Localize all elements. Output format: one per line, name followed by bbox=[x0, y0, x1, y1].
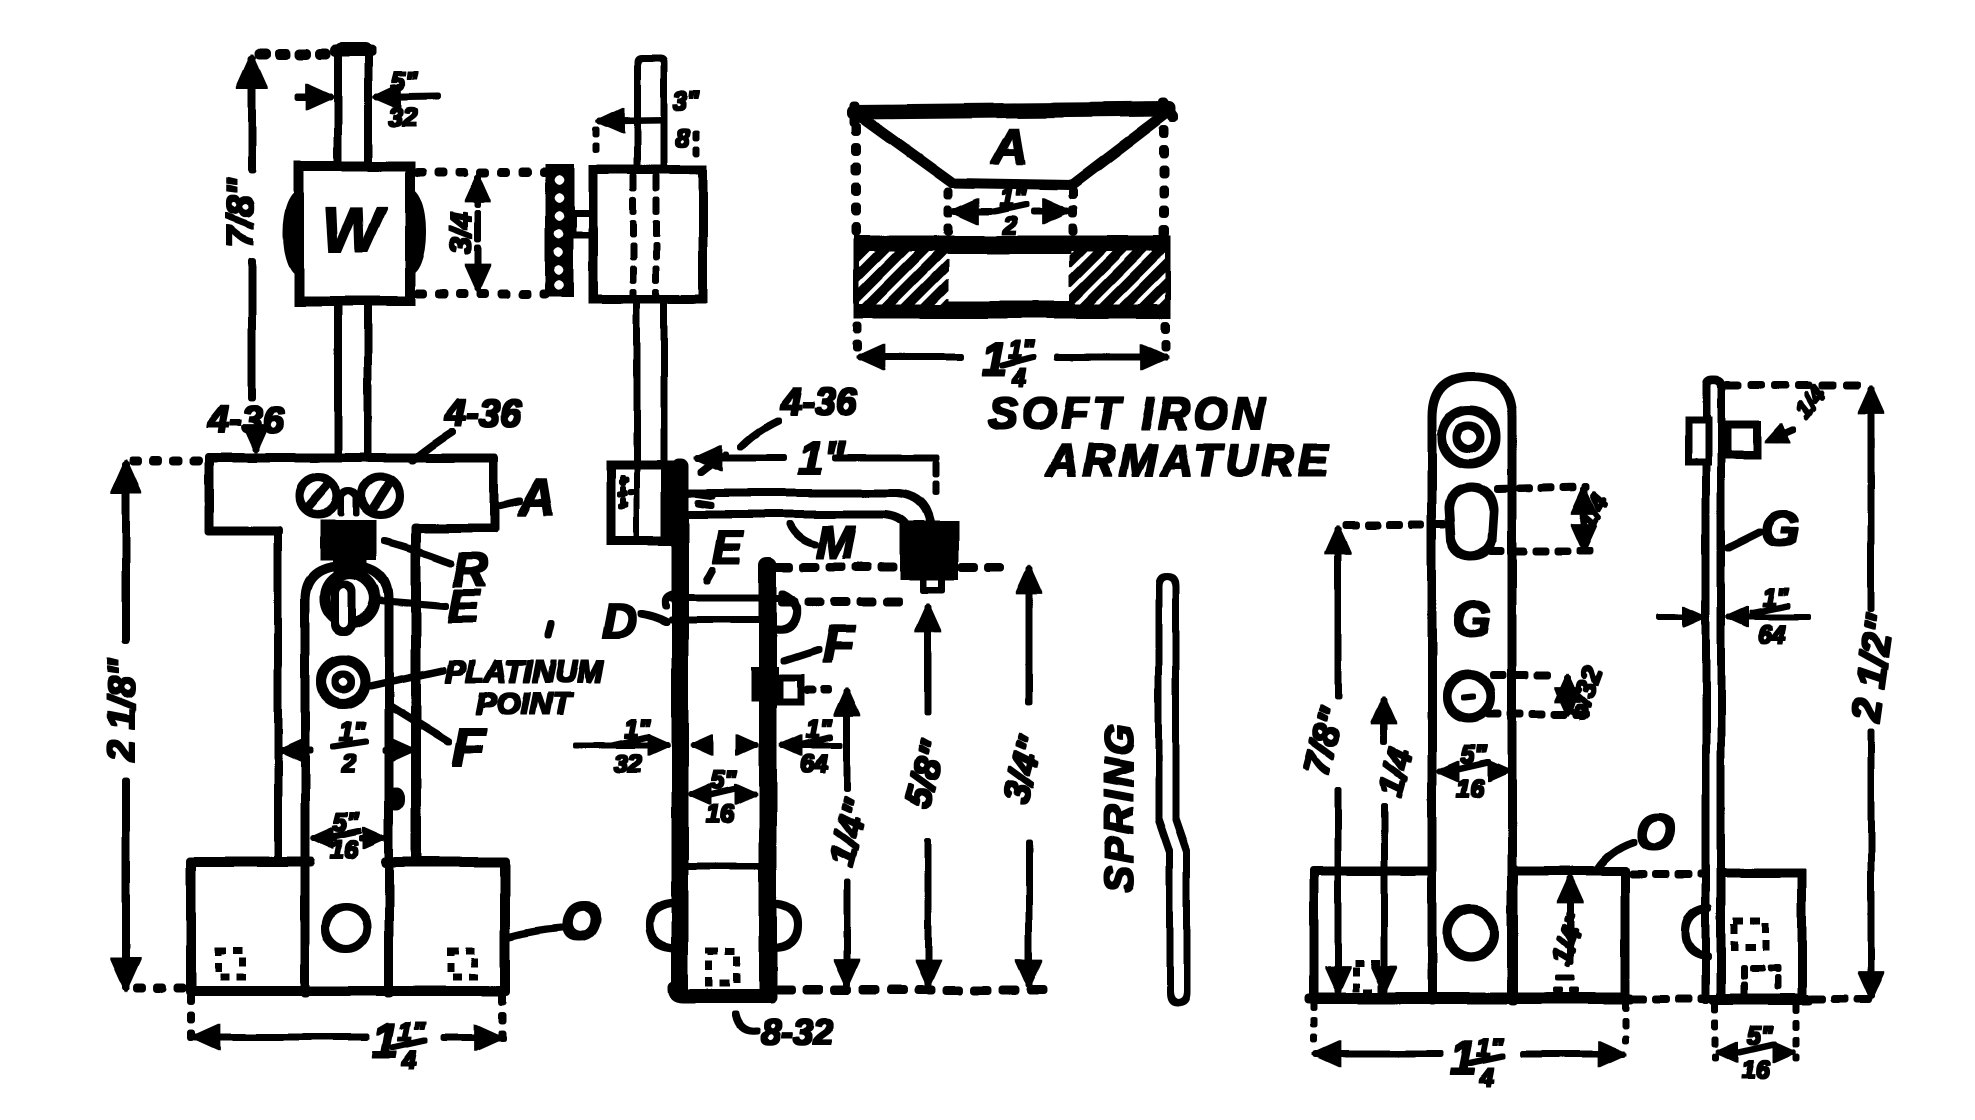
svg-text:1": 1" bbox=[798, 432, 847, 484]
svg-text:16: 16 bbox=[330, 836, 359, 864]
svg-text:2: 2 bbox=[341, 748, 357, 778]
svg-text:4: 4 bbox=[401, 1045, 417, 1075]
svg-text:4-36: 4-36 bbox=[207, 400, 285, 442]
svg-text:F: F bbox=[452, 718, 487, 778]
svg-text:POINT: POINT bbox=[476, 686, 574, 721]
svg-text:W: W bbox=[322, 194, 387, 266]
svg-text:F: F bbox=[822, 616, 855, 674]
svg-text:1: 1 bbox=[1450, 1032, 1477, 1085]
svg-text:D: D bbox=[602, 596, 637, 649]
svg-text:32: 32 bbox=[389, 102, 418, 132]
svg-text:4: 4 bbox=[1479, 1062, 1495, 1092]
svg-text:E: E bbox=[448, 580, 480, 632]
svg-text:1/4": 1/4" bbox=[1545, 909, 1592, 969]
svg-text:E: E bbox=[712, 521, 744, 573]
svg-text:5": 5" bbox=[391, 66, 418, 96]
svg-text:4-36: 4-36 bbox=[444, 393, 522, 435]
svg-text:1/4: 1/4 bbox=[1573, 489, 1615, 533]
svg-text:5/32: 5/32 bbox=[1562, 663, 1608, 723]
svg-text:G: G bbox=[1761, 501, 1800, 557]
svg-text:64: 64 bbox=[800, 750, 828, 778]
svg-text:2 1/2": 2 1/2" bbox=[1844, 610, 1903, 725]
svg-text:SPRING: SPRING bbox=[1098, 721, 1142, 892]
svg-text:A: A bbox=[990, 119, 1028, 175]
svg-text:PLATINUM: PLATINUM bbox=[445, 654, 604, 689]
svg-text:16: 16 bbox=[1742, 1056, 1771, 1084]
svg-text:5/8": 5/8" bbox=[897, 736, 954, 812]
svg-text:O: O bbox=[561, 895, 600, 951]
svg-text:O: O bbox=[1636, 804, 1675, 860]
svg-text:3": 3" bbox=[673, 86, 700, 116]
svg-text:8: 8 bbox=[676, 123, 691, 153]
svg-text:64: 64 bbox=[1758, 621, 1786, 649]
svg-text:3/4": 3/4" bbox=[995, 731, 1052, 807]
svg-text:16: 16 bbox=[1456, 775, 1485, 803]
svg-text:7/8": 7/8" bbox=[220, 178, 261, 247]
svg-text:8-32: 8-32 bbox=[761, 1011, 833, 1052]
svg-text:1: 1 bbox=[982, 333, 1008, 385]
svg-text:7/8": 7/8" bbox=[1296, 703, 1353, 779]
svg-text:4-36: 4-36 bbox=[780, 382, 858, 424]
svg-text:2 1/8": 2 1/8" bbox=[101, 658, 143, 763]
svg-text:16: 16 bbox=[706, 800, 735, 828]
svg-text:1: 1 bbox=[372, 1015, 399, 1068]
svg-text:1/4": 1/4" bbox=[820, 794, 877, 870]
svg-text:1/4: 1/4 bbox=[1372, 745, 1421, 801]
svg-text:2: 2 bbox=[1002, 212, 1017, 240]
svg-text:A: A bbox=[516, 469, 556, 527]
svg-text:3/4: 3/4 bbox=[445, 212, 478, 254]
svg-text:G: G bbox=[1452, 591, 1491, 647]
svg-text:SOFT IRON: SOFT IRON bbox=[988, 388, 1269, 439]
svg-text:ARMATURE: ARMATURE bbox=[1045, 435, 1332, 486]
svg-text:M: M bbox=[816, 516, 856, 568]
svg-text:32: 32 bbox=[614, 750, 642, 778]
